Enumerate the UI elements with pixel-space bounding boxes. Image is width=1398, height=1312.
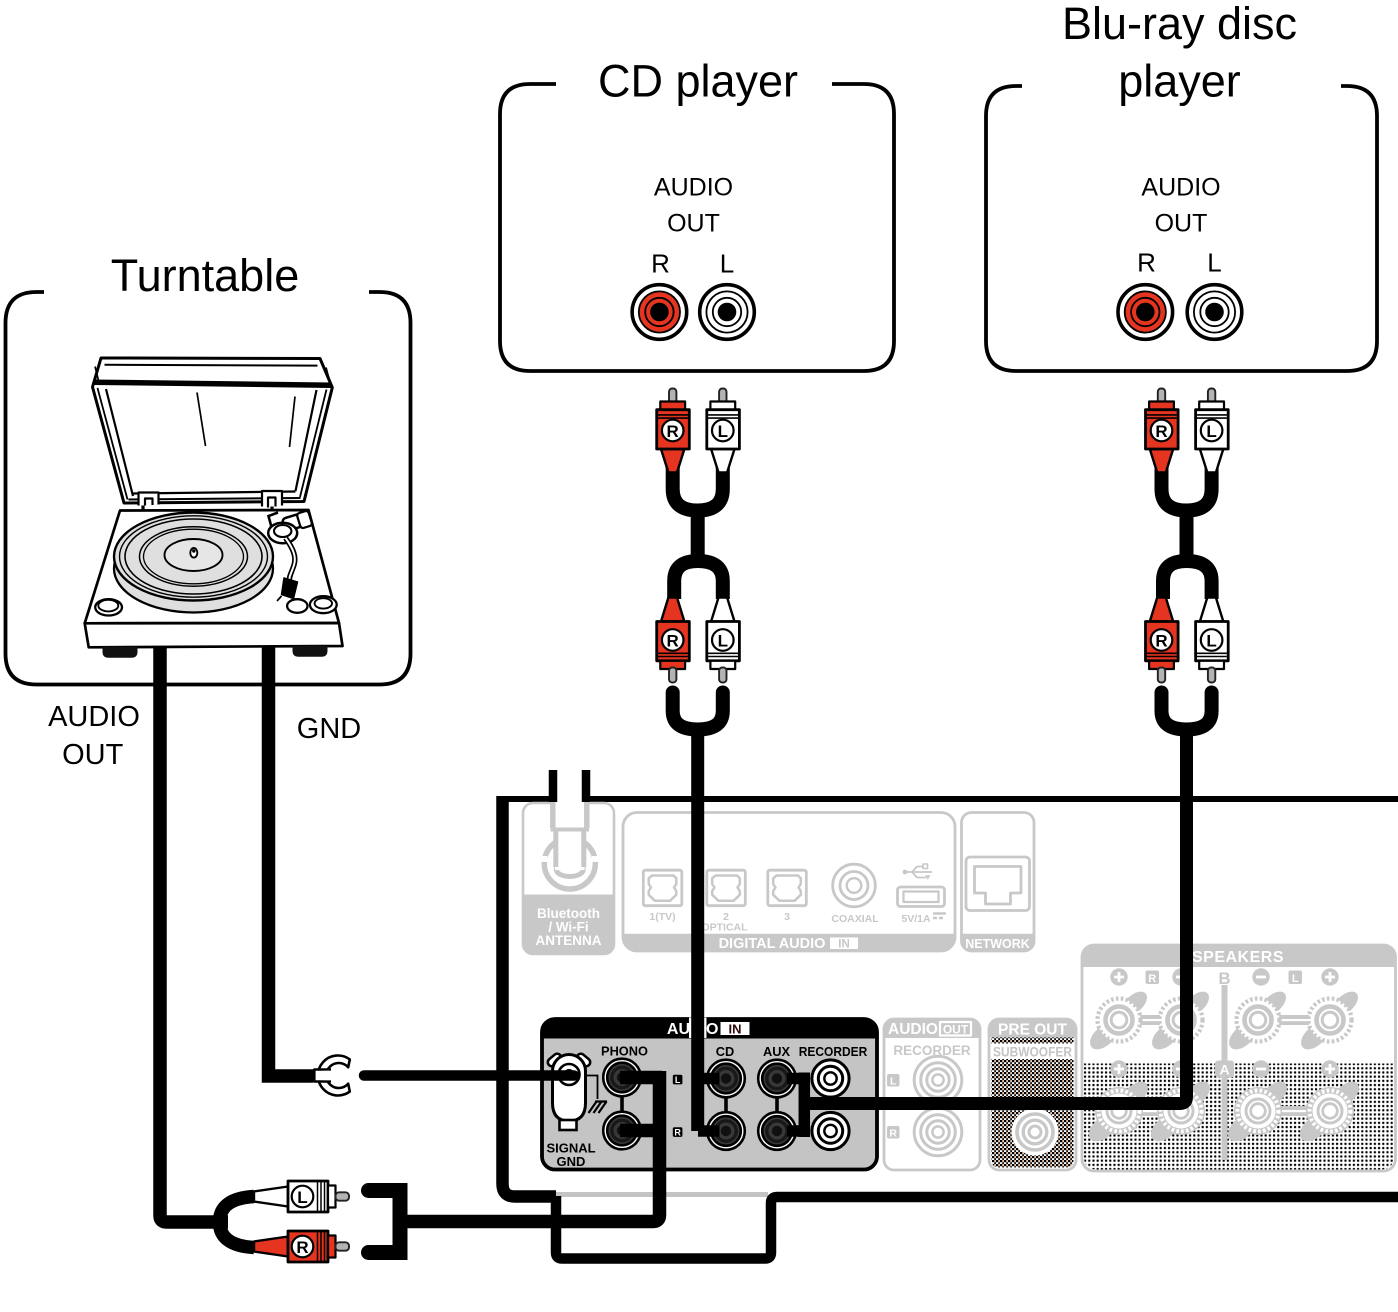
svg-text:AUDIO: AUDIO: [48, 701, 140, 733]
svg-text:R: R: [651, 249, 670, 279]
svg-text:R: R: [296, 1238, 308, 1257]
svg-text:IN: IN: [729, 1022, 742, 1037]
svg-text:1(TV): 1(TV): [649, 911, 675, 923]
svg-text:5V/1A: 5V/1A: [901, 913, 931, 925]
svg-text:OUT: OUT: [667, 210, 720, 238]
svg-text:Blu-ray disc: Blu-ray disc: [1062, 0, 1297, 49]
svg-text:CD: CD: [716, 1044, 734, 1059]
svg-text:IN: IN: [838, 939, 850, 951]
svg-text:L: L: [890, 1076, 897, 1088]
svg-text:SPEAKERS: SPEAKERS: [1192, 949, 1284, 966]
svg-text:AUDIO: AUDIO: [1141, 174, 1220, 202]
svg-text:R: R: [674, 1128, 681, 1138]
svg-text:L: L: [1207, 248, 1221, 278]
svg-text:PHONO: PHONO: [601, 1044, 648, 1059]
svg-text:DIGITAL AUDIO: DIGITAL AUDIO: [719, 936, 826, 952]
svg-text:B: B: [1218, 969, 1230, 988]
svg-text:R: R: [1148, 973, 1156, 985]
svg-text:player: player: [1118, 56, 1241, 107]
svg-text:R: R: [1137, 248, 1156, 278]
svg-text:Turntable: Turntable: [111, 250, 299, 301]
svg-text:OUT: OUT: [943, 1023, 969, 1037]
svg-text:ANTENNA: ANTENNA: [536, 933, 602, 948]
svg-text:SUBWOOFER: SUBWOOFER: [993, 1045, 1072, 1060]
svg-text:NETWORK: NETWORK: [965, 937, 1030, 951]
svg-text:GND: GND: [557, 1154, 586, 1169]
svg-text:PRE OUT: PRE OUT: [998, 1022, 1067, 1039]
svg-text:A: A: [1219, 1062, 1229, 1078]
svg-text:CD player: CD player: [598, 56, 798, 107]
svg-text:L: L: [1292, 973, 1299, 985]
svg-text:OUT: OUT: [1155, 210, 1208, 238]
svg-text:R: R: [889, 1128, 897, 1140]
svg-text:L: L: [720, 249, 734, 279]
svg-text:COAXIAL: COAXIAL: [831, 913, 879, 925]
svg-text:RECORDER: RECORDER: [799, 1044, 868, 1059]
svg-text:L: L: [297, 1188, 307, 1207]
svg-text:3: 3: [784, 911, 790, 923]
svg-text:AUDIO: AUDIO: [888, 1021, 938, 1038]
svg-text:AUDIO: AUDIO: [654, 174, 733, 202]
svg-text:OUT: OUT: [62, 739, 124, 771]
svg-text:GND: GND: [297, 713, 361, 745]
svg-text:OPTICAL: OPTICAL: [701, 922, 748, 934]
svg-text:L: L: [675, 1075, 681, 1085]
svg-text:AUX: AUX: [763, 1044, 790, 1059]
